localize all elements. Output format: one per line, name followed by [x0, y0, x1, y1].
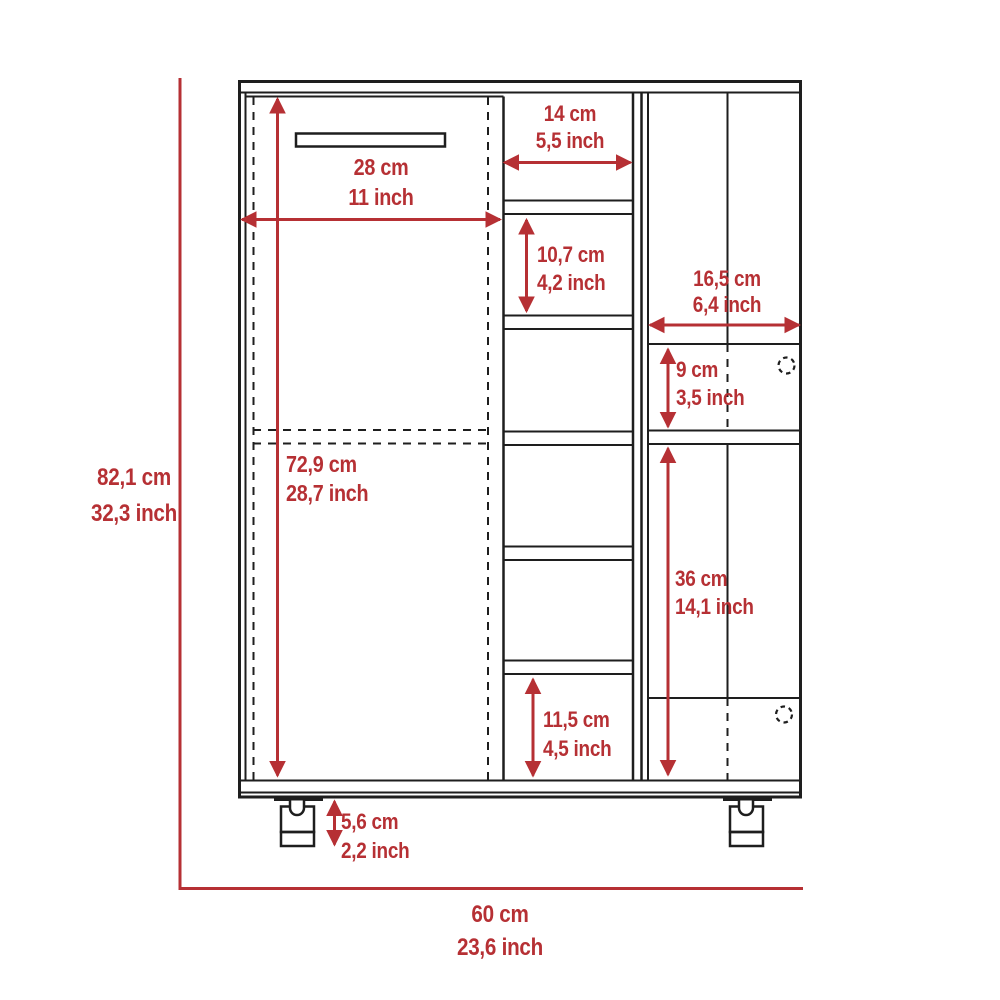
caster-height-label: 5,6 cm 2,2 inch [341, 807, 409, 865]
drawer-height-inch: 3,5 inch [676, 384, 744, 412]
door-width-cm: 28 cm [312, 152, 450, 182]
caster-height-cm: 5,6 cm [341, 807, 409, 836]
left-caster-pad [281, 832, 314, 846]
bottom-cubby-height-label: 11,5 cm 4,5 inch [543, 705, 611, 763]
lower-cabinet-height-cm: 36 cm [675, 565, 754, 593]
right-section-width-inch: 6,4 inch [658, 292, 796, 318]
right-section-width-cm: 16,5 cm [658, 266, 796, 292]
overall-width-cm: 60 cm [431, 898, 569, 931]
cubby-height-cm: 10,7 cm [537, 241, 605, 269]
cubby-height-label: 10,7 cm 4,2 inch [537, 241, 605, 297]
bottom-cubby-height-cm: 11,5 cm [543, 705, 611, 734]
door-height-inch: 28,7 inch [286, 479, 368, 508]
drawer-height-label: 9 cm 3,5 inch [676, 356, 744, 412]
right-caster-stem [739, 801, 753, 816]
technical-drawing-canvas: 82,1 cm 32,3 inch 60 cm 23,6 inch 28 cm … [0, 0, 1000, 1000]
right-section-width-label: 16,5 cm 6,4 inch [658, 266, 796, 318]
cubby-column [504, 93, 649, 781]
door-handle [296, 134, 445, 147]
overall-height-cm: 82,1 cm [65, 460, 203, 496]
drawer-height-cm: 9 cm [676, 356, 744, 384]
overall-extent-lines [180, 78, 803, 889]
bottom-cubby-height-inch: 4,5 inch [543, 734, 611, 763]
caster-height-inch: 2,2 inch [341, 836, 409, 865]
left-caster-stem [290, 801, 304, 816]
lower-cabinet-height-label: 36 cm 14,1 inch [675, 565, 754, 621]
dimension-lines [180, 78, 803, 889]
overall-width-label: 60 cm 23,6 inch [431, 898, 569, 964]
lower-cabinet-height-inch: 14,1 inch [675, 593, 754, 621]
cubby-width-label: 14 cm 5,5 inch [501, 100, 639, 154]
cubby-width-inch: 5,5 inch [501, 127, 639, 154]
right-caster-pad [730, 832, 763, 846]
left-caster [274, 799, 323, 846]
door-height-label: 72,9 cm 28,7 inch [286, 450, 368, 508]
right-section [648, 93, 801, 781]
drawer-knob-icon [779, 358, 795, 374]
right-caster [723, 799, 772, 846]
door-height-cm: 72,9 cm [286, 450, 368, 479]
door-width-label: 28 cm 11 inch [312, 152, 450, 212]
cubby-height-inch: 4,2 inch [537, 269, 605, 297]
cubby-width-cm: 14 cm [501, 100, 639, 127]
door-width-inch: 11 inch [312, 182, 450, 212]
overall-height-inch: 32,3 inch [65, 496, 203, 532]
overall-height-label: 82,1 cm 32,3 inch [65, 460, 203, 532]
overall-width-inch: 23,6 inch [431, 931, 569, 964]
bottom-drawer-knob-icon [776, 707, 792, 723]
